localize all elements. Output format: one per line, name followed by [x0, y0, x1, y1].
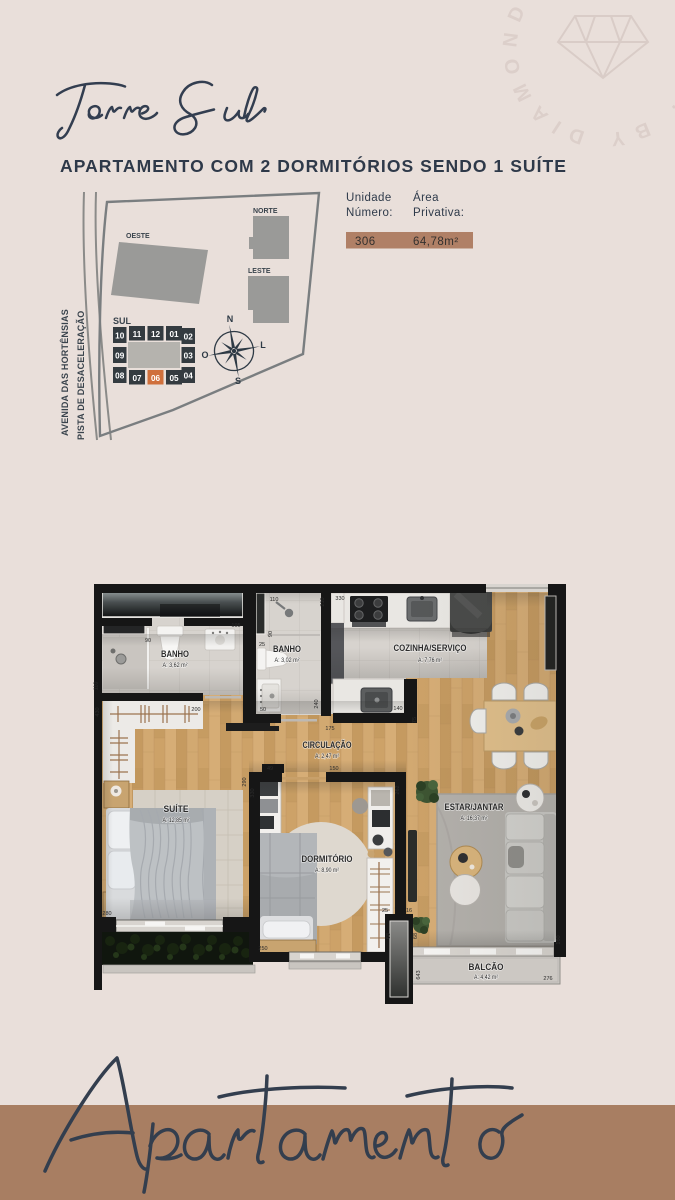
svg-text:DORMITÓRIO: DORMITÓRIO — [302, 853, 353, 864]
svg-text:240: 240 — [314, 699, 320, 708]
svg-text:210: 210 — [320, 597, 326, 606]
svg-text:68: 68 — [413, 933, 419, 939]
svg-text:280: 280 — [102, 911, 111, 917]
svg-text:N: N — [227, 314, 234, 324]
svg-text:276: 276 — [543, 976, 552, 982]
svg-text:LESTE: LESTE — [248, 268, 271, 275]
svg-text:140: 140 — [393, 706, 402, 712]
svg-text:306: 306 — [355, 236, 376, 248]
svg-text:SUL: SUL — [113, 316, 132, 326]
svg-text:NORTE: NORTE — [253, 208, 278, 215]
svg-text:110: 110 — [94, 682, 100, 691]
svg-text:L: L — [260, 340, 266, 350]
svg-text:A: 7,76 m²: A: 7,76 m² — [418, 657, 443, 664]
svg-text:643: 643 — [416, 970, 422, 979]
svg-text:08: 08 — [115, 372, 125, 381]
svg-text:262: 262 — [395, 785, 401, 794]
svg-text:BANHO: BANHO — [161, 649, 189, 659]
svg-text:12: 12 — [151, 330, 161, 339]
svg-text:09: 09 — [115, 352, 125, 361]
svg-text:90: 90 — [268, 631, 274, 637]
svg-text:Unidade: Unidade — [346, 192, 392, 204]
svg-text:68: 68 — [386, 933, 392, 939]
svg-text:90: 90 — [145, 638, 151, 644]
svg-text:A: 4,42 m²: A: 4,42 m² — [474, 974, 499, 981]
svg-text:330: 330 — [250, 788, 256, 797]
svg-text:25: 25 — [259, 642, 265, 648]
svg-text:AVENIDA DAS HORTÊNSIAS: AVENIDA DAS HORTÊNSIAS — [59, 309, 70, 436]
svg-text:25: 25 — [382, 908, 388, 914]
svg-text:160: 160 — [556, 935, 562, 944]
svg-text:A: 3,02 m²: A: 3,02 m² — [275, 657, 301, 664]
svg-text:290: 290 — [242, 777, 248, 786]
svg-text:11: 11 — [133, 330, 142, 339]
svg-text:A: 8,90 m²: A: 8,90 m² — [315, 867, 340, 874]
svg-text:A: 2,47 m²: A: 2,47 m² — [315, 753, 340, 760]
svg-text:64,78m²: 64,78m² — [413, 236, 459, 248]
svg-text:A: 12,85 m²: A: 12,85 m² — [163, 817, 191, 824]
svg-text:Privativa:: Privativa: — [413, 207, 464, 219]
svg-text:200: 200 — [191, 707, 200, 713]
svg-text:16: 16 — [406, 908, 412, 914]
svg-text:APARTAMENTO COM 2 DORMITÓRIOS: APARTAMENTO COM 2 DORMITÓRIOS SENDO 1 SU… — [60, 155, 567, 176]
svg-text:195: 195 — [231, 623, 240, 629]
svg-text:49: 49 — [267, 766, 273, 772]
svg-text:110: 110 — [270, 597, 279, 603]
svg-text:50: 50 — [260, 707, 266, 713]
svg-text:10: 10 — [115, 332, 125, 341]
svg-text:150: 150 — [329, 766, 338, 772]
svg-text:S: S — [235, 376, 241, 386]
svg-text:01: 01 — [169, 330, 179, 339]
svg-text:250: 250 — [258, 946, 267, 952]
svg-text:BALCÃO: BALCÃO — [469, 962, 504, 972]
svg-text:07: 07 — [132, 374, 142, 383]
svg-text:03: 03 — [184, 352, 194, 361]
svg-text:SUÍTE: SUÍTE — [164, 804, 189, 814]
svg-text:06: 06 — [151, 374, 161, 383]
svg-text:A: 16,37 m²: A: 16,37 m² — [461, 815, 489, 822]
svg-text:CIRCULAÇÃO: CIRCULAÇÃO — [303, 740, 352, 750]
svg-text:75: 75 — [412, 717, 418, 723]
svg-text:PISTA DE DESACELERAÇÃO: PISTA DE DESACELERAÇÃO — [76, 311, 86, 440]
svg-text:COZINHA/SERVIÇO: COZINHA/SERVIÇO — [394, 643, 467, 653]
svg-text:OESTE: OESTE — [126, 233, 150, 240]
svg-text:Número:: Número: — [346, 207, 393, 219]
svg-text:05: 05 — [169, 374, 179, 383]
svg-text:BANHO: BANHO — [273, 644, 301, 654]
svg-text:330: 330 — [335, 596, 344, 602]
svg-text:430: 430 — [95, 707, 101, 716]
svg-text:O: O — [201, 350, 208, 360]
svg-text:Área: Área — [413, 191, 439, 204]
svg-text:ESTAR/JANTAR: ESTAR/JANTAR — [445, 802, 504, 812]
svg-text:02: 02 — [184, 333, 194, 342]
svg-text:175: 175 — [325, 726, 334, 732]
svg-text:A: 3,62 m²: A: 3,62 m² — [163, 662, 189, 669]
svg-text:04: 04 — [184, 372, 194, 381]
